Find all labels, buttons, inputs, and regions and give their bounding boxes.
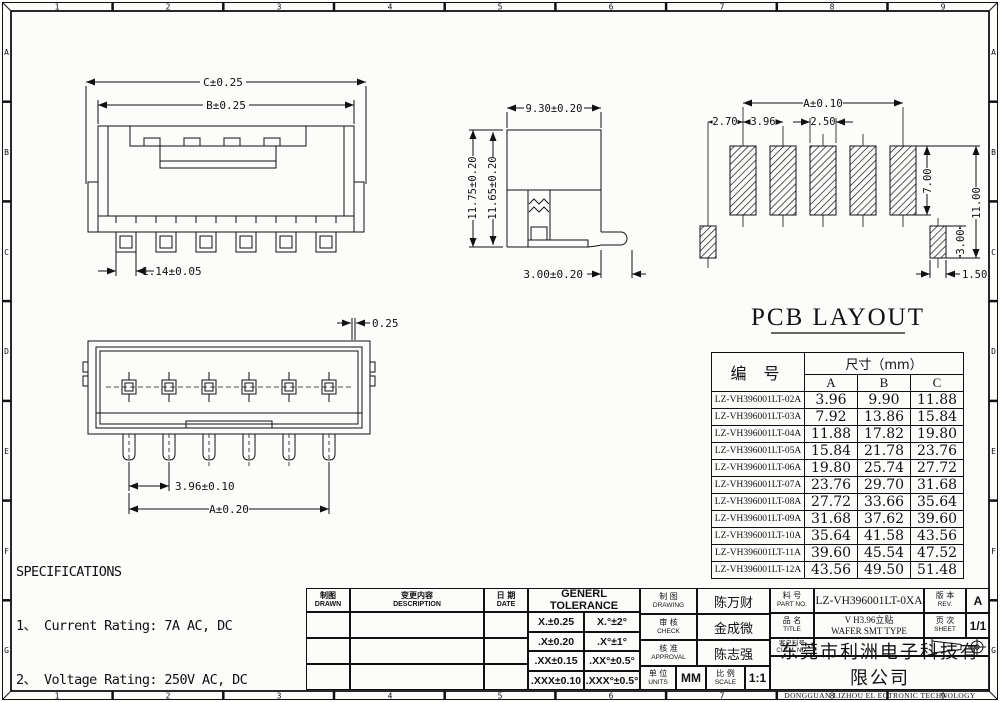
dim-label-height-inner: 11.65±0.20 <box>487 156 499 219</box>
table-row: LZ-VH396001LT-08A27.7233.6635.64 <box>712 494 964 511</box>
table-row: LZ-VH396001LT-11A39.6045.5447.52 <box>712 545 964 562</box>
rev-label: 版 本 REV. <box>924 588 966 613</box>
tolerance-value: .XXX±0.10 <box>528 671 584 690</box>
front-view-pins <box>116 232 336 252</box>
pcb-pads <box>700 146 946 258</box>
date-header: 日 期 DATE <box>484 588 528 612</box>
svg-text:G: G <box>4 646 9 655</box>
tolerance-value: .X°±1° <box>584 632 640 651</box>
tolerance-value: X.±0.25 <box>528 612 584 632</box>
svg-text:4: 4 <box>388 3 393 12</box>
dim-label-height-outer: 11.75±0.20 <box>467 156 479 219</box>
specifications-title: SPECIFICATIONS <box>16 563 322 581</box>
svg-text:5: 5 <box>498 692 503 701</box>
svg-text:F: F <box>991 547 996 556</box>
svg-text:7: 7 <box>720 3 725 12</box>
revision-cell <box>306 638 350 664</box>
svg-text:E: E <box>4 447 9 456</box>
top-view-legs <box>123 434 335 466</box>
dim-label-wall: 0.25 <box>372 317 398 330</box>
table-row: LZ-VH396001LT-06A19.8025.7427.72 <box>712 460 964 477</box>
svg-text:C: C <box>4 248 9 257</box>
col-b-header: B <box>858 375 911 392</box>
sheet-value: 1/1 <box>966 613 990 638</box>
drawing-name: 陈万财 <box>697 588 770 614</box>
drawing-sheet: 123456789 123456789 ABCDEFG ABCDEFG <box>0 0 1000 702</box>
svg-text:4: 4 <box>388 692 393 701</box>
svg-text:9: 9 <box>941 3 946 12</box>
dim-label-pin-length: 3.00±0.20 <box>523 268 583 281</box>
svg-text:8: 8 <box>830 3 835 12</box>
svg-text:1: 1 <box>55 3 60 12</box>
spec-line: 1、 Current Rating: 7A AC, DC <box>16 617 322 635</box>
table-row: LZ-VH396001LT-04A11.8817.8219.80 <box>712 426 964 443</box>
table-row: LZ-VH396001LT-02A3.969.9011.88 <box>712 392 964 409</box>
dim-label-c: C±0.25 <box>203 76 243 89</box>
dim-label-end-offset: 2.70 <box>712 116 737 128</box>
dim-label-pad-height: 7.00 <box>922 168 934 193</box>
dim-label-pad-width: 2.50 <box>810 116 835 128</box>
revision-cell <box>306 664 350 690</box>
dim-label-pad-pitch: 3.96 <box>750 116 775 128</box>
dim-label-small-pad-width: 1.50 <box>962 269 987 281</box>
svg-text:D: D <box>4 347 9 356</box>
tolerance-value: .XXX°±0.5° <box>584 671 640 690</box>
title-block: 制图 DRAWN 变更内容 DESCRIPTION 日 期 DATE GENER… <box>306 588 990 690</box>
side-view-drawing: 9.30±0.20 11.75±0.20 11.65±0.20 3.00±0.2… <box>428 82 653 297</box>
size-header: 尺寸（mm） <box>805 353 964 375</box>
table-row: LZ-VH396001LT-09A31.6837.6239.60 <box>712 511 964 528</box>
revision-cell <box>306 612 350 638</box>
company-name-en: DONGGUAN LIZHOU EL ECTRONIC TECHNOLOGY C… <box>771 691 989 702</box>
rev-value: A <box>966 588 990 613</box>
sheet-label: 页 次 SHEET <box>924 613 966 638</box>
tolerance-value: .XX°±0.5° <box>584 651 640 671</box>
top-view-drawing: 0.25 3.96±0.10 A±0.20 <box>58 310 398 525</box>
tolerance-header: GENERL TOLERANCE <box>528 588 640 612</box>
units-value: MM <box>676 666 706 690</box>
tolerance-value: .XX±0.15 <box>528 651 584 671</box>
title-label: 品 名 TITLE <box>770 613 814 638</box>
revision-cell <box>350 664 484 690</box>
part-no-value: LZ-VH396001LT-0XA <box>814 588 924 613</box>
table-row: LZ-VH396001LT-07A23.7629.7031.68 <box>712 477 964 494</box>
dim-label-pin-width: 1.14±0.05 <box>142 265 202 278</box>
check-name: 金成微 <box>697 614 770 640</box>
approval-label: 核 准 APPROVAL <box>640 640 697 666</box>
company-name-cn: 东莞市利洲电子科技有限公司 <box>771 638 989 690</box>
tolerance-value: .X±0.20 <box>528 632 584 651</box>
revision-cell <box>350 638 484 664</box>
svg-text:A: A <box>4 48 9 57</box>
units-label: 单 位 UNITS <box>640 666 676 690</box>
table-row: LZ-VH396001LT-03A7.9213.8615.84 <box>712 409 964 426</box>
specifications-block: SPECIFICATIONS 1、 Current Rating: 7A AC,… <box>16 527 322 702</box>
revision-cell <box>484 638 528 664</box>
approval-name: 陈志强 <box>697 640 770 666</box>
part-no-header: 编 号 <box>712 353 805 392</box>
dim-label-small-pad-height: 3.00 <box>955 229 967 254</box>
svg-text:2: 2 <box>166 3 171 12</box>
company-block: 东莞市利洲电子科技有限公司 DONGGUAN LIZHOU EL ECTRONI… <box>770 656 990 690</box>
svg-text:6: 6 <box>609 3 614 12</box>
pcb-layout-title: PCB LAYOUT <box>751 304 925 331</box>
svg-text:F: F <box>4 547 9 556</box>
dim-label-pad-span: A±0.10 <box>803 97 843 110</box>
svg-text:G: G <box>991 646 996 655</box>
drawing-label: 制 图 DRAWING <box>640 588 697 614</box>
col-c-header: C <box>911 375 964 392</box>
dim-label-depth: 9.30±0.20 <box>526 103 583 115</box>
title-value: V H3.96立贴 WAFER SMT TYPE <box>814 613 924 638</box>
table-row: LZ-VH396001LT-10A35.6441.5843.56 <box>712 528 964 545</box>
table-header-row: 编 号 尺寸（mm） <box>712 353 964 375</box>
tolerance-value: X.°±2° <box>584 612 640 632</box>
svg-text:3: 3 <box>277 3 282 12</box>
col-a-header: A <box>805 375 858 392</box>
svg-text:6: 6 <box>609 692 614 701</box>
dim-label-pitch: 3.96±0.10 <box>175 480 235 493</box>
revision-cell <box>350 612 484 638</box>
part-no-label: 料 号 PART NO. <box>770 588 814 613</box>
table-row: LZ-VH396001LT-05A15.8421.7823.76 <box>712 443 964 460</box>
dim-label-span: A±0.20 <box>209 503 249 516</box>
parts-dimension-table: 编 号 尺寸（mm） A B C LZ-VH396001LT-02A3.969.… <box>711 352 964 579</box>
revision-cell <box>484 612 528 638</box>
description-header: 变更内容 DESCRIPTION <box>350 588 484 612</box>
dim-label-total-height: 11.00 <box>971 187 983 219</box>
front-view-drawing: C±0.25 B±0.25 1.14±0.05 <box>58 60 388 295</box>
svg-text:5: 5 <box>498 3 503 12</box>
spec-line: 2、 Voltage Rating: 250V AC, DC <box>16 671 322 689</box>
svg-text:E: E <box>991 447 996 456</box>
table-row: LZ-VH396001LT-12A43.5649.5051.48 <box>712 562 964 579</box>
revision-cell <box>484 664 528 690</box>
drawn-header: 制图 DRAWN <box>306 588 350 612</box>
dim-label-b: B±0.25 <box>206 99 246 112</box>
svg-text:D: D <box>991 347 996 356</box>
scale-value: 1:1 <box>745 666 770 690</box>
svg-text:B: B <box>4 148 9 157</box>
scale-label: 比 例 SCALE <box>706 666 745 690</box>
pcb-layout-drawing: A±0.10 2.70 3.96 2.50 7.00 11.00 3.00 1.… <box>688 93 993 343</box>
svg-text:7: 7 <box>720 692 725 701</box>
svg-text:A: A <box>991 48 996 57</box>
check-label: 审 核 CHECK <box>640 614 697 640</box>
